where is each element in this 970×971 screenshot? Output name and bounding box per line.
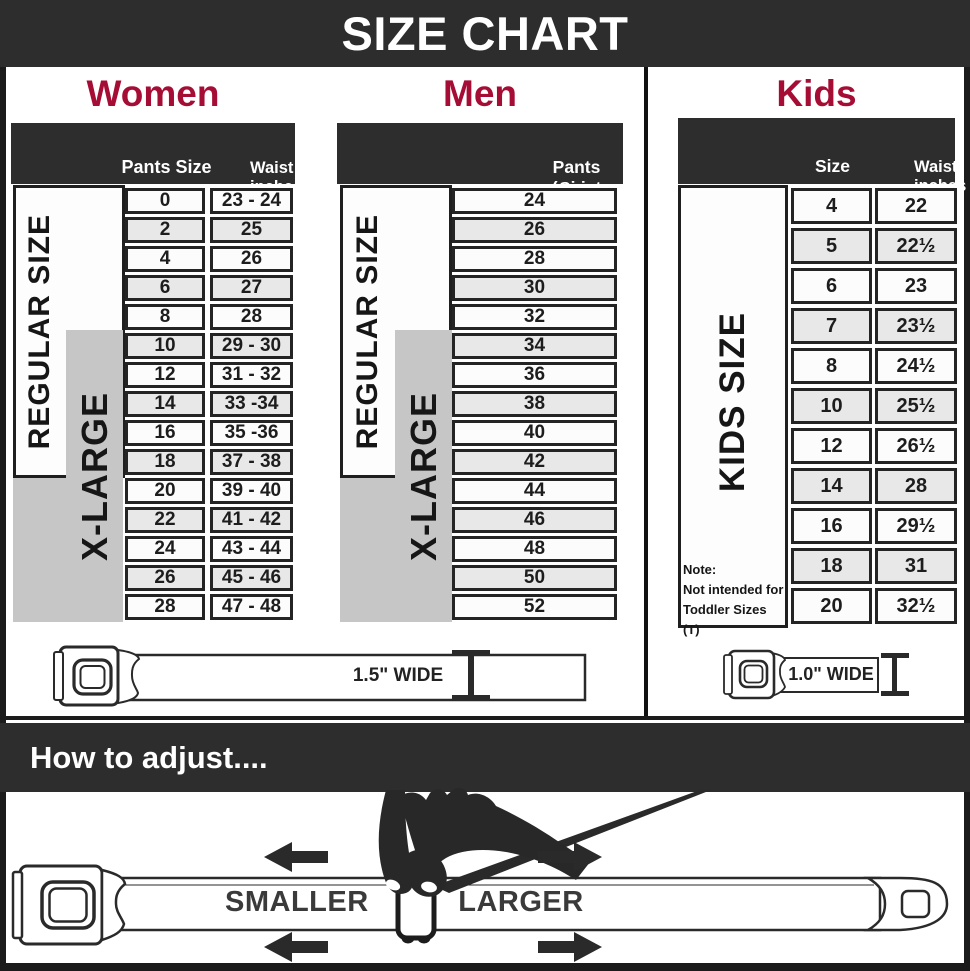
pants-size-cell: 6 [125,275,205,301]
waist-cell: 37 - 38 [210,449,293,475]
table-row: 627 [125,275,293,301]
women-regular-label: REGULAR SIZE [13,185,66,478]
pants-size-cell: 26 [125,565,205,591]
page-title: SIZE CHART [342,6,629,61]
buckle-side-band [724,655,732,694]
pants-size-cell: 20 [125,478,205,504]
table-row: 44 [452,478,617,504]
width-marker-icon [881,653,909,696]
table-row: 42 [452,449,617,475]
panel-bottom-rule [0,716,970,720]
men-heading: Men [337,71,623,117]
waist-cell: 22½ [875,228,957,264]
waist-cell: 31 [875,548,957,584]
waist-cell: 25½ [875,388,957,424]
buckle-side-band [54,652,63,700]
pants-size-cell: 24 [125,536,205,562]
table-row: 824½ [791,348,957,384]
men-col-pants: Pants Size (waist inches) [449,157,619,178]
waist-cell: 28 [875,468,957,504]
table-row: 48 [452,536,617,562]
table-row: 28 [452,246,617,272]
table-row: 1837 - 38 [125,449,293,475]
adjust-banner: How to adjust.... [0,723,970,792]
table-row: 1029 - 30 [125,333,293,359]
table-row: 1226½ [791,428,957,464]
adjust-diagram [0,790,970,963]
size-cell: 4 [791,188,872,224]
pants-size-cell: 36 [452,362,617,388]
waist-cell: 28 [210,304,293,330]
waist-cell: 43 - 44 [210,536,293,562]
table-row: 24 [452,188,617,214]
table-row: 26 [452,217,617,243]
pants-size-cell: 16 [125,420,205,446]
size-cell: 8 [791,348,872,384]
table-row: 2847 - 48 [125,594,293,620]
waist-cell: 29 - 30 [210,333,293,359]
waist-cell: 26 [210,246,293,272]
size-cell: 6 [791,268,872,304]
pants-size-cell: 2 [125,217,205,243]
waist-cell: 45 - 46 [210,565,293,591]
table-row: 723½ [791,308,957,344]
pants-size-cell: 38 [452,391,617,417]
table-row: 422 [791,188,957,224]
pants-size-cell: 12 [125,362,205,388]
adult-belt-width-label: 1.5" WIDE [350,665,446,687]
kids-col-waist: Waist inches [874,158,954,177]
waist-cell: 23 - 24 [210,188,293,214]
women-col-waist: Waist inches [197,159,303,178]
table-row: 2032½ [791,588,957,624]
larger-label: LARGER [451,886,591,919]
size-cell: 14 [791,468,872,504]
kids-col-size: Size [790,156,875,177]
table-row: 40 [452,420,617,446]
waist-cell: 26½ [875,428,957,464]
table-row: 32 [452,304,617,330]
buckle-side-band [13,872,22,938]
pants-size-cell: 26 [452,217,617,243]
table-row: 50 [452,565,617,591]
frame-bottom [0,963,970,971]
pants-size-cell: 48 [452,536,617,562]
kids-note: Note: Not intended for Toddler Sizes (T) [683,560,786,641]
men-regular-label: REGULAR SIZE [340,185,395,478]
table-row: 623 [791,268,957,304]
section-divider [644,67,648,717]
size-cell: 18 [791,548,872,584]
pants-size-cell: 44 [452,478,617,504]
kids-table-header: Size Waist inches [678,118,955,184]
pants-size-cell: 10 [125,333,205,359]
women-heading: Women [11,71,295,117]
arrow-left-icon [264,842,328,872]
waist-cell: 47 - 48 [210,594,293,620]
waist-cell: 25 [210,217,293,243]
pants-size-cell: 14 [125,391,205,417]
arrow-right-icon [538,932,602,962]
pants-size-cell: 32 [452,304,617,330]
table-row: 828 [125,304,293,330]
waist-cell: 24½ [875,348,957,384]
waist-cell: 27 [210,275,293,301]
table-row: 34 [452,333,617,359]
kids-size-label: KIDS SIZE [678,235,788,570]
table-row: 38 [452,391,617,417]
kids-belt-width-label: 1.0" WIDE [783,664,879,685]
table-row: 1428 [791,468,957,504]
kids-table-body: 422522½623723½824½1025½1226½14281629½183… [791,188,957,628]
table-row: 2039 - 40 [125,478,293,504]
waist-cell: 39 - 40 [210,478,293,504]
waist-cell: 41 - 42 [210,507,293,533]
table-row: 1831 [791,548,957,584]
women-table-body: 023 - 242254266278281029 - 301231 - 3214… [125,188,293,623]
pants-size-cell: 30 [452,275,617,301]
pants-size-cell: 18 [125,449,205,475]
size-cell: 12 [791,428,872,464]
pants-size-cell: 46 [452,507,617,533]
buckle-button-inner [50,889,87,922]
table-row: 52 [452,594,617,620]
size-cell: 7 [791,308,872,344]
waist-cell: 23 [875,268,957,304]
arrow-left-icon [264,932,328,962]
women-xlarge-label: X-LARGE [66,330,123,622]
buckle-button-inner [745,666,763,683]
table-row: 225 [125,217,293,243]
pants-size-cell: 52 [452,594,617,620]
table-row: 2645 - 46 [125,565,293,591]
pants-size-cell: 22 [125,507,205,533]
table-row: 1433 -34 [125,391,293,417]
men-xlarge-label: X-LARGE [395,330,452,622]
pants-size-cell: 4 [125,246,205,272]
waist-cell: 31 - 32 [210,362,293,388]
men-xlarge-box-ext [340,478,397,622]
pants-size-cell: 8 [125,304,205,330]
men-table-header: Pants Size (waist inches) [337,123,623,184]
size-cell: 5 [791,228,872,264]
smaller-label: SMALLER [225,886,365,919]
women-xlarge-box-ext [13,478,69,622]
table-row: 1231 - 32 [125,362,293,388]
pants-size-cell: 34 [452,333,617,359]
size-cell: 10 [791,388,872,424]
adjust-heading: How to adjust.... [30,740,268,776]
adult-belt-illustration [20,643,620,709]
table-row: 2443 - 44 [125,536,293,562]
pants-size-cell: 50 [452,565,617,591]
table-row: 522½ [791,228,957,264]
buckle-button-inner [81,666,105,688]
pants-size-cell: 42 [452,449,617,475]
title-banner: SIZE CHART [0,0,970,67]
waist-cell: 35 -36 [210,420,293,446]
size-cell: 20 [791,588,872,624]
table-row: 1629½ [791,508,957,544]
table-row: 2241 - 42 [125,507,293,533]
tongue-hole [902,891,929,917]
pants-size-cell: 24 [452,188,617,214]
pants-size-cell: 28 [452,246,617,272]
table-row: 023 - 24 [125,188,293,214]
table-row: 30 [452,275,617,301]
pants-size-cell: 0 [125,188,205,214]
table-row: 46 [452,507,617,533]
waist-cell: 22 [875,188,957,224]
kids-heading: Kids [678,71,955,117]
waist-cell: 33 -34 [210,391,293,417]
table-row: 36 [452,362,617,388]
waist-cell: 29½ [875,508,957,544]
size-chart-infographic: SIZE CHART Women Men Kids Pants Size Wai… [0,0,970,971]
pants-size-cell: 28 [125,594,205,620]
women-table-header: Pants Size Waist inches [11,123,295,184]
waist-cell: 32½ [875,588,957,624]
men-table-body: 242628303234363840424446485052 [452,188,617,623]
size-cell: 16 [791,508,872,544]
table-row: 426 [125,246,293,272]
pants-size-cell: 40 [452,420,617,446]
waist-cell: 23½ [875,308,957,344]
table-row: 1025½ [791,388,957,424]
table-row: 1635 -36 [125,420,293,446]
